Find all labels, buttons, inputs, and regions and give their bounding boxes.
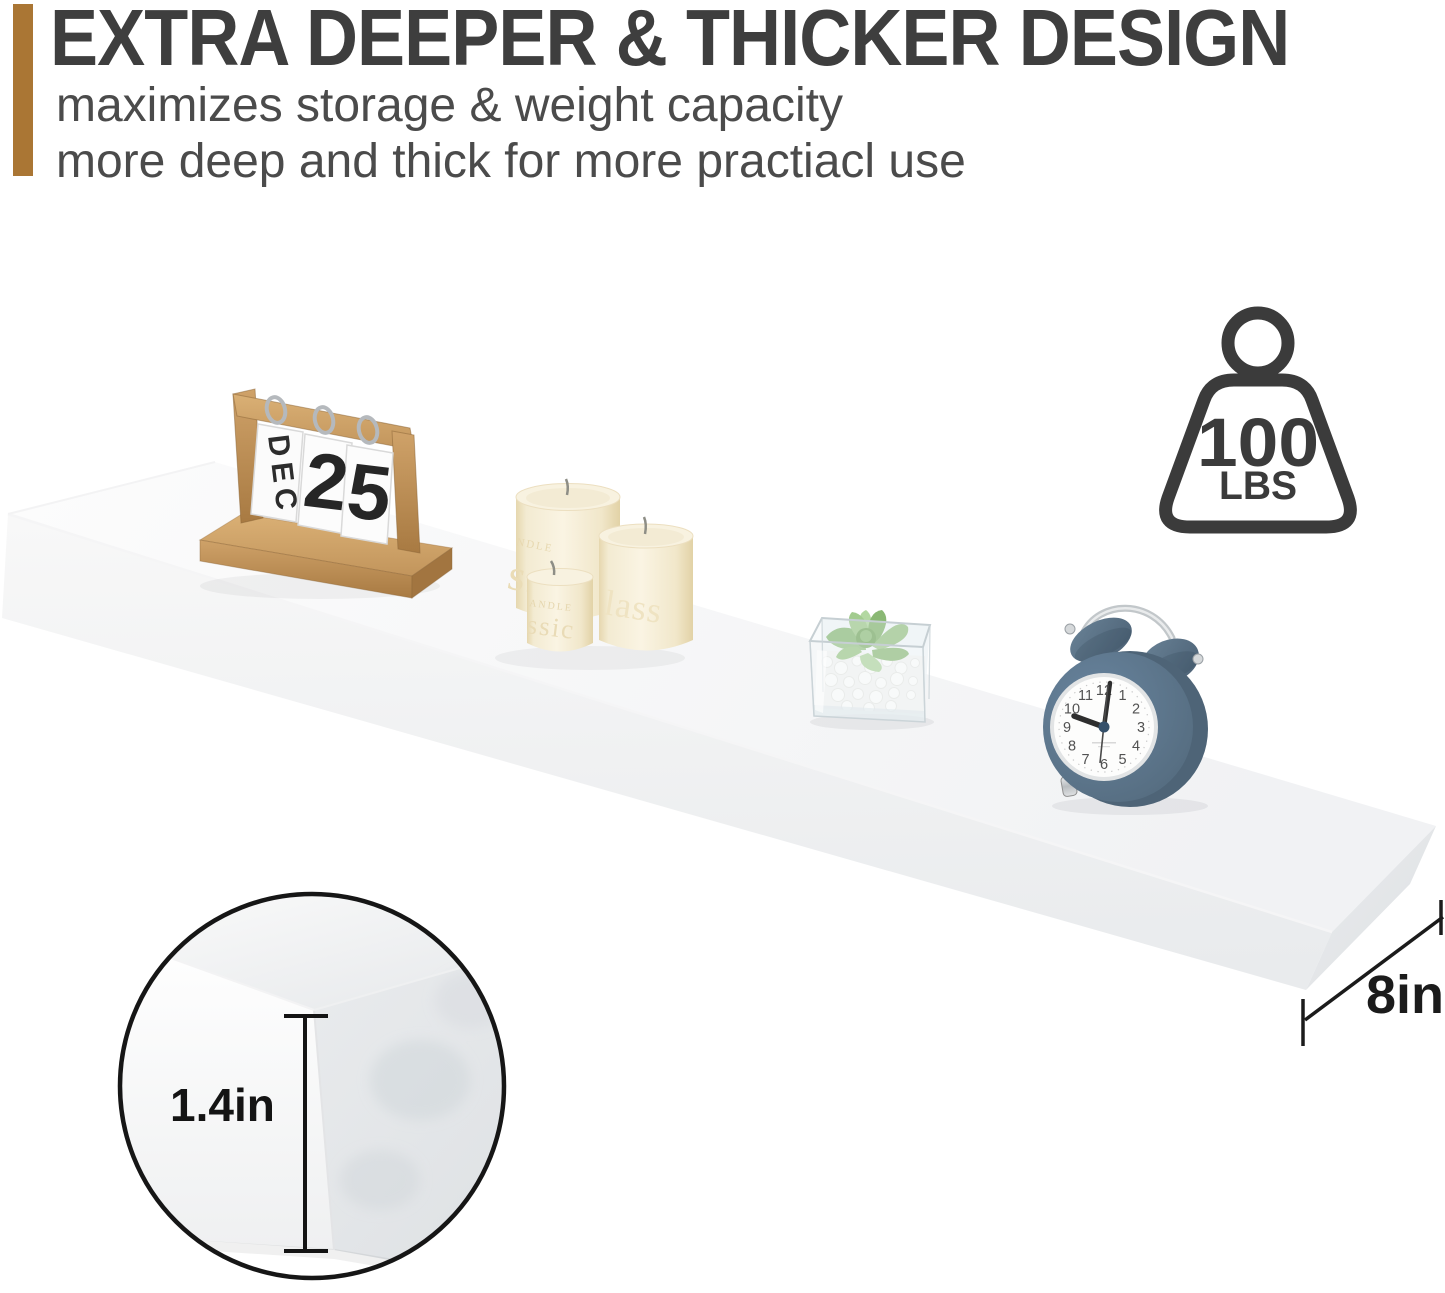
svg-text:1: 1 xyxy=(1118,688,1126,704)
candle-medium: lass xyxy=(599,517,693,651)
thickness-detail-inset: 1.4in xyxy=(110,888,512,1282)
candle-small: ANDLE ssic xyxy=(525,561,593,652)
depth-dimension-label: 8in xyxy=(1366,965,1444,1025)
succulent-planter xyxy=(810,610,930,722)
svg-text:2: 2 xyxy=(1132,702,1140,718)
vase-front-wall xyxy=(810,641,925,722)
alarm-clock: 12 1 2 3 4 5 6 7 8 9 10 11 xyxy=(1043,608,1208,807)
candle-small-emboss: ssic xyxy=(525,609,577,645)
svg-text:8: 8 xyxy=(1068,739,1076,755)
weight-capacity-icon: 100 LBS xyxy=(1166,313,1351,527)
clock-right-bell-nut xyxy=(1193,654,1203,664)
candle-small-top xyxy=(527,569,593,586)
weight-unit: LBS xyxy=(1219,464,1297,508)
inset-shelf-top-fill xyxy=(110,888,512,890)
clock-brand-mark-2 xyxy=(1098,746,1110,747)
thickness-dimension-label: 1.4in xyxy=(170,1079,275,1131)
svg-text:9: 9 xyxy=(1063,720,1071,736)
svg-text:4: 4 xyxy=(1132,739,1140,755)
clock-brand-mark xyxy=(1092,742,1116,744)
clock-left-bell-nut xyxy=(1065,624,1075,634)
product-infographic: EXTRA DEEPER & THICKER DESIGN maximizes … xyxy=(0,0,1445,1293)
weight-icon-ring xyxy=(1228,313,1288,373)
svg-text:5: 5 xyxy=(1118,752,1126,768)
vase-rim xyxy=(810,618,930,647)
clock-center-cap xyxy=(1099,722,1110,733)
product-scene: DEC 2 5 NDLE ssic lass xyxy=(0,0,1445,1293)
svg-text:11: 11 xyxy=(1078,688,1093,704)
svg-text:3: 3 xyxy=(1137,720,1145,736)
svg-text:7: 7 xyxy=(1081,752,1089,768)
